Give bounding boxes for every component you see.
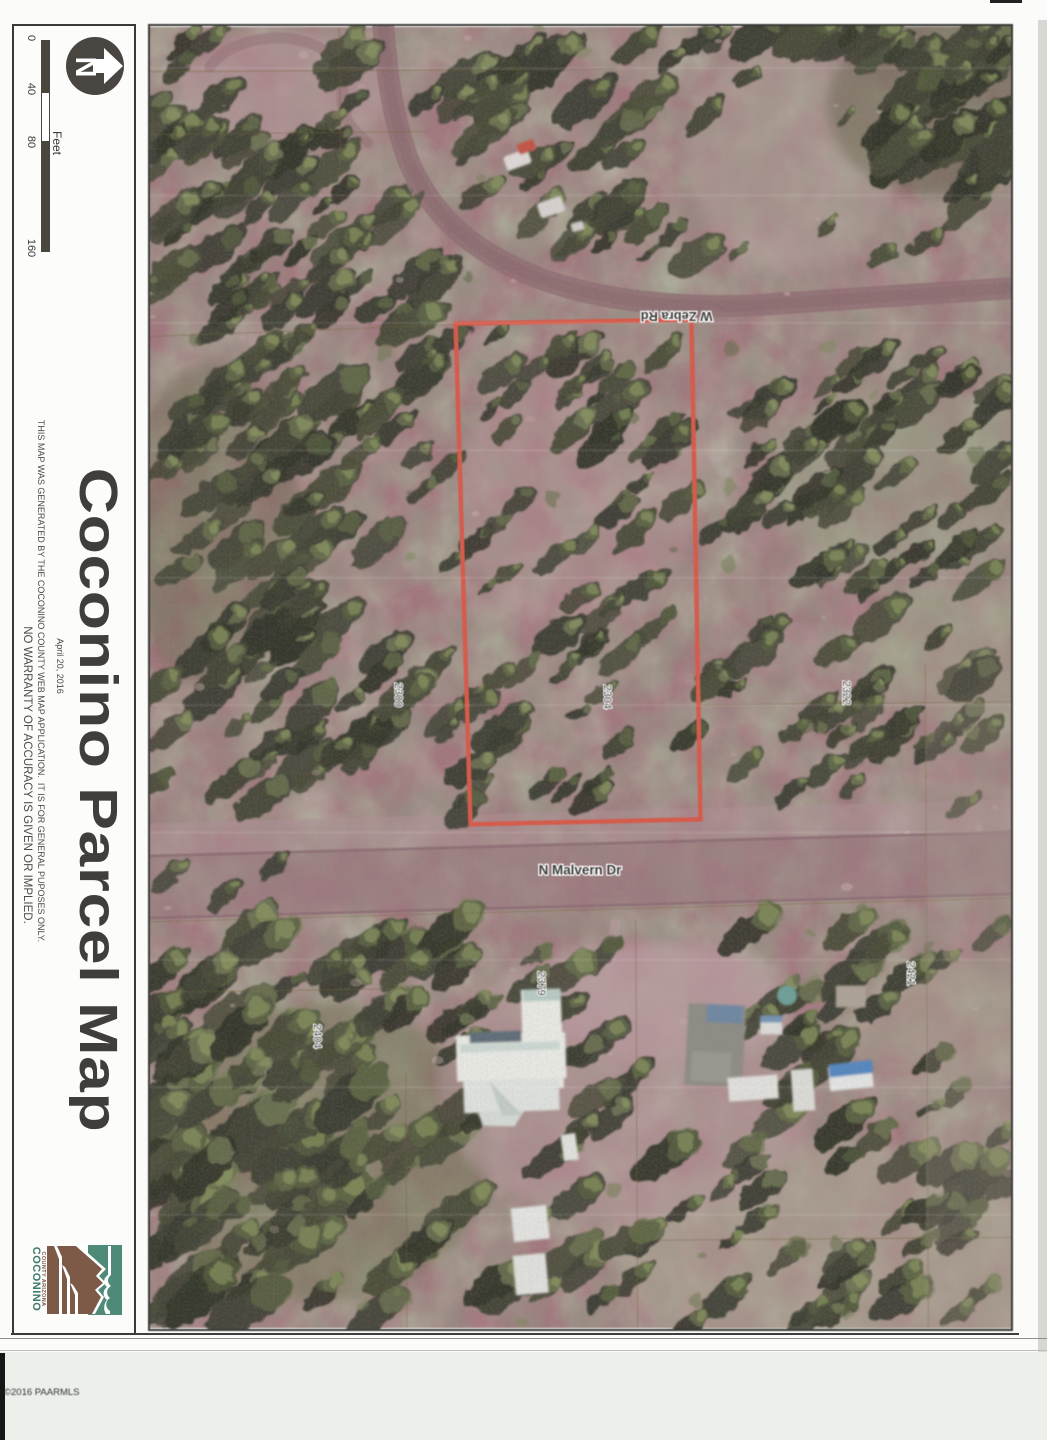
svg-text:2304: 2304 — [601, 685, 613, 709]
svg-text:N Malvern Dr: N Malvern Dr — [539, 863, 623, 878]
svg-text:N: N — [69, 57, 101, 78]
svg-text:2404: 2404 — [311, 1024, 323, 1048]
svg-text:2379: 2379 — [535, 971, 547, 995]
svg-text:2322: 2322 — [840, 681, 852, 705]
svg-text:2421: 2421 — [904, 961, 916, 985]
svg-text:2300: 2300 — [392, 683, 404, 707]
svg-text:W Zebra Rd: W Zebra Rd — [641, 309, 713, 324]
